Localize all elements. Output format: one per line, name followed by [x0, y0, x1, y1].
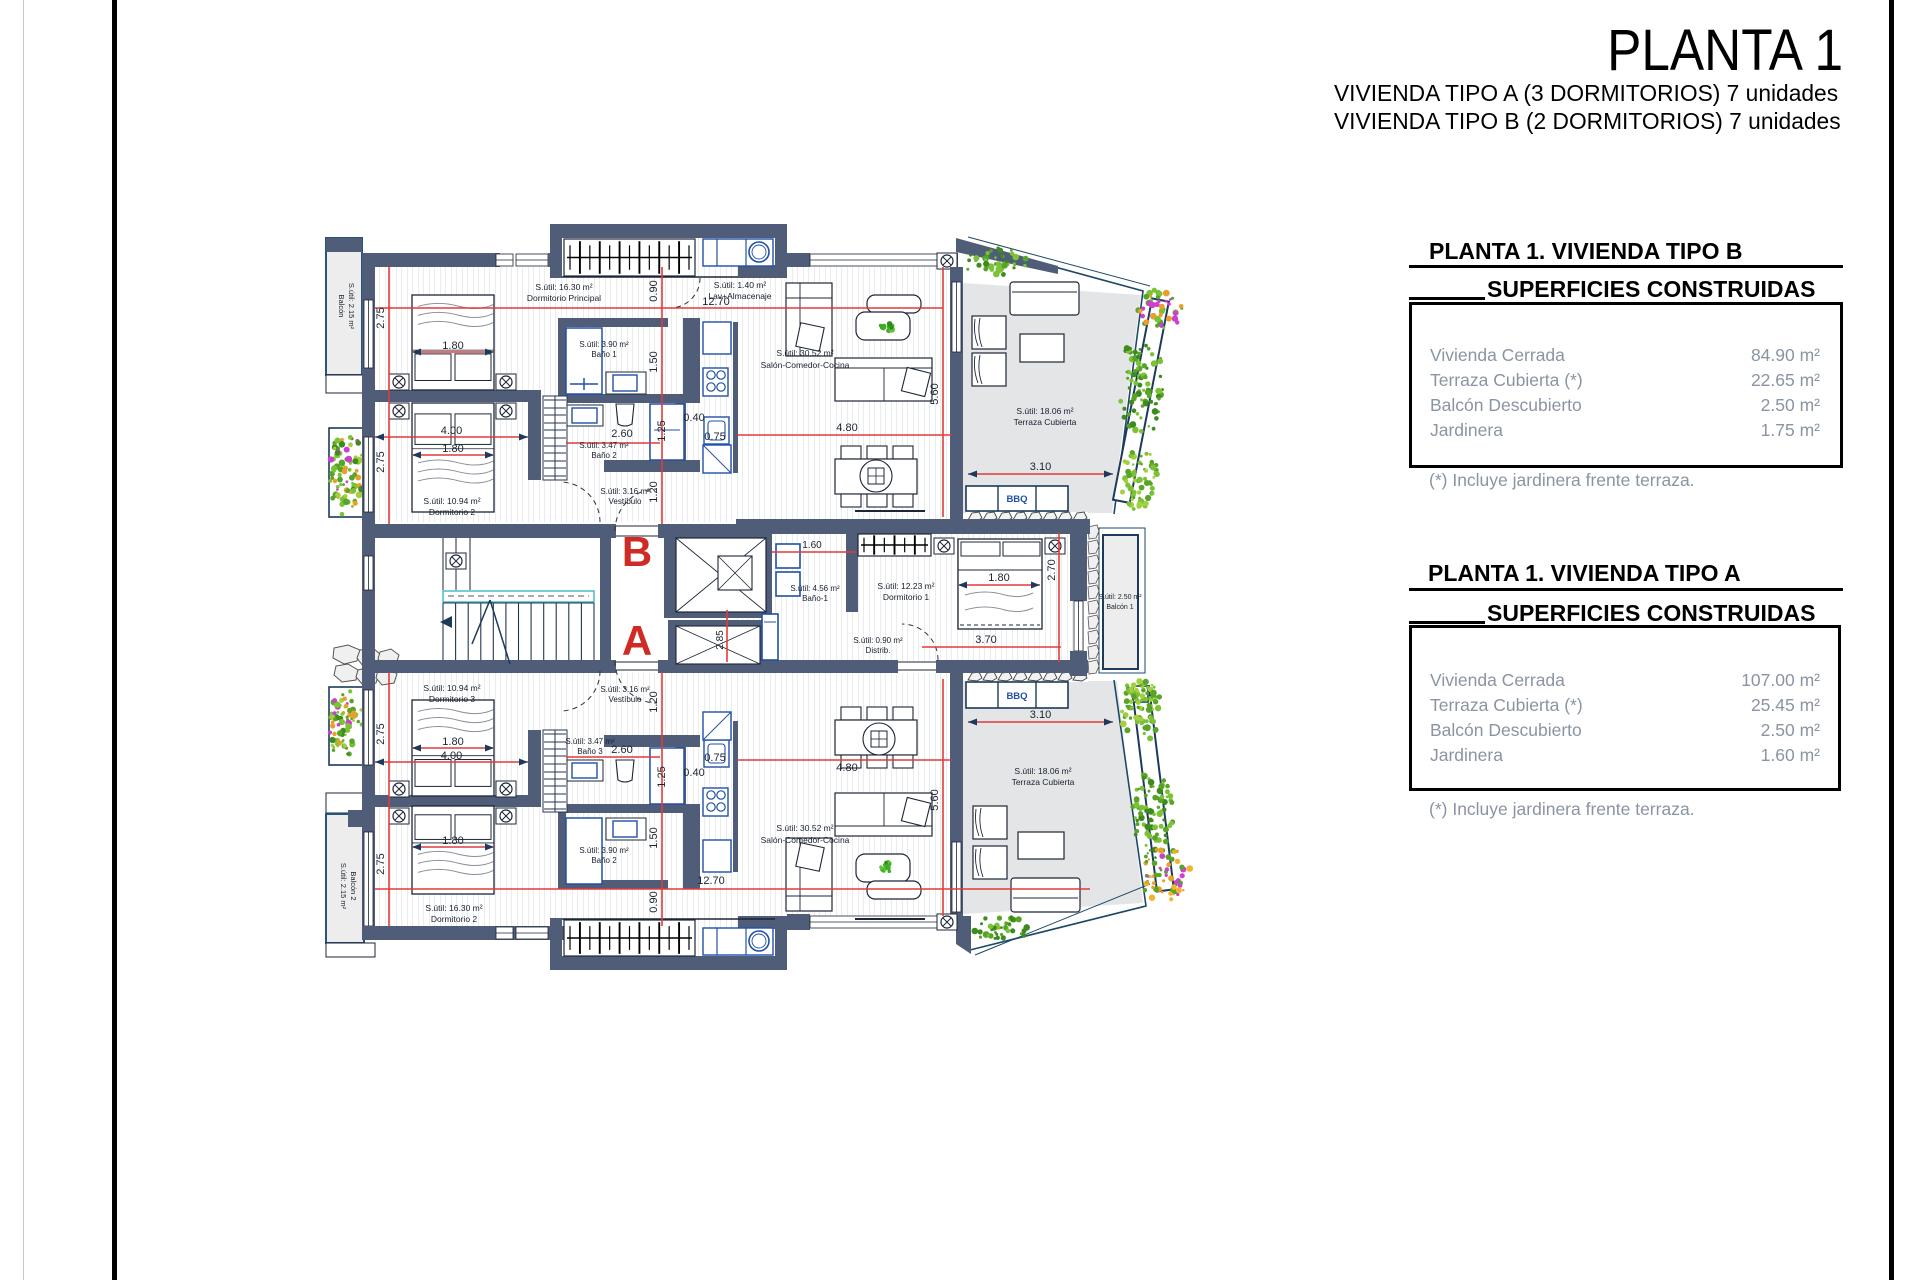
svg-text:Vestíbulo: Vestíbulo	[609, 695, 642, 704]
svg-text:1.50: 1.50	[648, 827, 660, 848]
svg-text:1.80: 1.80	[988, 572, 1009, 584]
svg-text:Balcón: Balcón	[337, 295, 346, 318]
svg-text:0.75: 0.75	[704, 431, 725, 443]
svg-text:0.75: 0.75	[704, 752, 725, 764]
svg-text:S.útil: 12.23 m²: S.útil: 12.23 m²	[877, 581, 934, 591]
svg-text:2.70: 2.70	[1046, 559, 1058, 580]
svg-text:S.útil: 2.15 m²: S.útil: 2.15 m²	[339, 863, 348, 910]
svg-text:Salón-Comedor-Cocina: Salón-Comedor-Cocina	[761, 835, 850, 845]
svg-text:3.10: 3.10	[1030, 461, 1051, 473]
svg-text:Dormitorio 2: Dormitorio 2	[429, 507, 476, 517]
svg-text:2.75: 2.75	[375, 451, 387, 472]
svg-text:S.útil: 30.52 m²: S.útil: 30.52 m²	[776, 823, 833, 833]
svg-text:3.10: 3.10	[1030, 709, 1051, 721]
svg-text:S.útil: 3.90 m²: S.útil: 3.90 m²	[579, 340, 629, 349]
svg-text:4.80: 4.80	[836, 422, 857, 434]
svg-text:1.25: 1.25	[656, 420, 668, 441]
svg-text:Baño-1: Baño-1	[802, 594, 828, 603]
svg-text:Baño 3: Baño 3	[577, 747, 603, 756]
svg-text:1.80: 1.80	[442, 443, 463, 455]
svg-text:5.60: 5.60	[929, 383, 941, 404]
svg-text:Dormitorio 2: Dormitorio 2	[431, 914, 478, 924]
svg-text:0.40: 0.40	[683, 767, 704, 779]
svg-text:1.50: 1.50	[648, 351, 660, 372]
svg-text:1.80: 1.80	[442, 736, 463, 748]
svg-text:S.útil: 3.16 m²: S.útil: 3.16 m²	[600, 487, 650, 496]
svg-text:1.20: 1.20	[648, 481, 660, 502]
svg-text:S.útil: 3.47 m²: S.útil: 3.47 m²	[565, 737, 615, 746]
svg-text:Terraza Cubierta: Terraza Cubierta	[1012, 777, 1075, 787]
svg-text:A: A	[622, 617, 652, 664]
svg-text:1.25: 1.25	[656, 766, 668, 787]
svg-text:2.85: 2.85	[715, 630, 726, 650]
svg-text:Salón-Comedor-Cocina: Salón-Comedor-Cocina	[761, 360, 850, 370]
svg-text:5.60: 5.60	[929, 789, 941, 810]
svg-text:S.útil: 10.94 m²: S.útil: 10.94 m²	[423, 683, 480, 693]
svg-text:BBQ: BBQ	[1006, 691, 1027, 702]
svg-text:S.útil: 16.30 m²: S.útil: 16.30 m²	[425, 903, 482, 913]
svg-text:S.útil: 1.40 m²: S.útil: 1.40 m²	[714, 280, 767, 290]
svg-text:S.útil: 10.94 m²: S.útil: 10.94 m²	[423, 496, 480, 506]
svg-text:S.útil: 3.90 m²: S.útil: 3.90 m²	[579, 846, 629, 855]
svg-text:2.75: 2.75	[375, 723, 387, 744]
svg-text:Terraza Cubierta: Terraza Cubierta	[1014, 417, 1077, 427]
svg-text:0.90: 0.90	[648, 280, 660, 301]
svg-text:1.20: 1.20	[648, 691, 660, 712]
svg-text:1.60: 1.60	[802, 540, 822, 551]
svg-text:Balcón 1: Balcón 1	[1106, 604, 1133, 611]
svg-text:BBQ: BBQ	[1006, 494, 1027, 505]
svg-text:Baño 2: Baño 2	[591, 856, 617, 865]
svg-text:12.70: 12.70	[697, 875, 725, 887]
svg-text:S.útil: 30.52 m²: S.útil: 30.52 m²	[776, 348, 833, 358]
svg-text:Baño 2: Baño 2	[591, 451, 617, 460]
svg-text:Lav+Almacenaje: Lav+Almacenaje	[708, 291, 771, 301]
svg-text:Vestíbulo: Vestíbulo	[609, 497, 642, 506]
svg-text:Dormitorio 1: Dormitorio 1	[883, 592, 930, 602]
svg-text:4.80: 4.80	[836, 762, 857, 774]
svg-text:S.útil: 16.30 m²: S.útil: 16.30 m²	[535, 282, 592, 292]
svg-text:S.útil: 18.06 m²: S.útil: 18.06 m²	[1014, 766, 1071, 776]
svg-text:0.90: 0.90	[648, 891, 660, 912]
svg-text:Distrib.: Distrib.	[866, 646, 891, 655]
svg-text:S.útil: 18.06 m²: S.útil: 18.06 m²	[1016, 406, 1073, 416]
svg-text:1.80: 1.80	[442, 340, 463, 352]
svg-text:Baño 1: Baño 1	[591, 350, 617, 359]
svg-text:4.00: 4.00	[441, 425, 462, 437]
svg-text:2.75: 2.75	[375, 307, 387, 328]
svg-text:2.60: 2.60	[611, 428, 632, 440]
svg-text:S.útil: 4.56 m²: S.útil: 4.56 m²	[790, 584, 840, 593]
svg-text:2.75: 2.75	[375, 853, 387, 874]
svg-text:0.40: 0.40	[683, 412, 704, 424]
svg-text:B: B	[622, 528, 652, 575]
svg-text:Dormitorio 3: Dormitorio 3	[429, 694, 476, 704]
svg-text:1.80: 1.80	[442, 835, 463, 847]
svg-text:S.útil: 0.90 m²: S.útil: 0.90 m²	[853, 636, 903, 645]
svg-text:3.70: 3.70	[975, 634, 996, 646]
svg-text:S.útil: 2.50 m²: S.útil: 2.50 m²	[1098, 594, 1142, 601]
svg-text:4.00: 4.00	[441, 750, 462, 762]
svg-text:Balcón 2: Balcón 2	[349, 871, 358, 900]
svg-text:S.útil: 3.16 m²: S.útil: 3.16 m²	[600, 685, 650, 694]
svg-text:S.útil: 3.47 m²: S.útil: 3.47 m²	[579, 441, 629, 450]
svg-text:Dormitorio Principal: Dormitorio Principal	[527, 293, 601, 303]
svg-text:S.útil: 2.15 m²: S.útil: 2.15 m²	[347, 283, 356, 330]
